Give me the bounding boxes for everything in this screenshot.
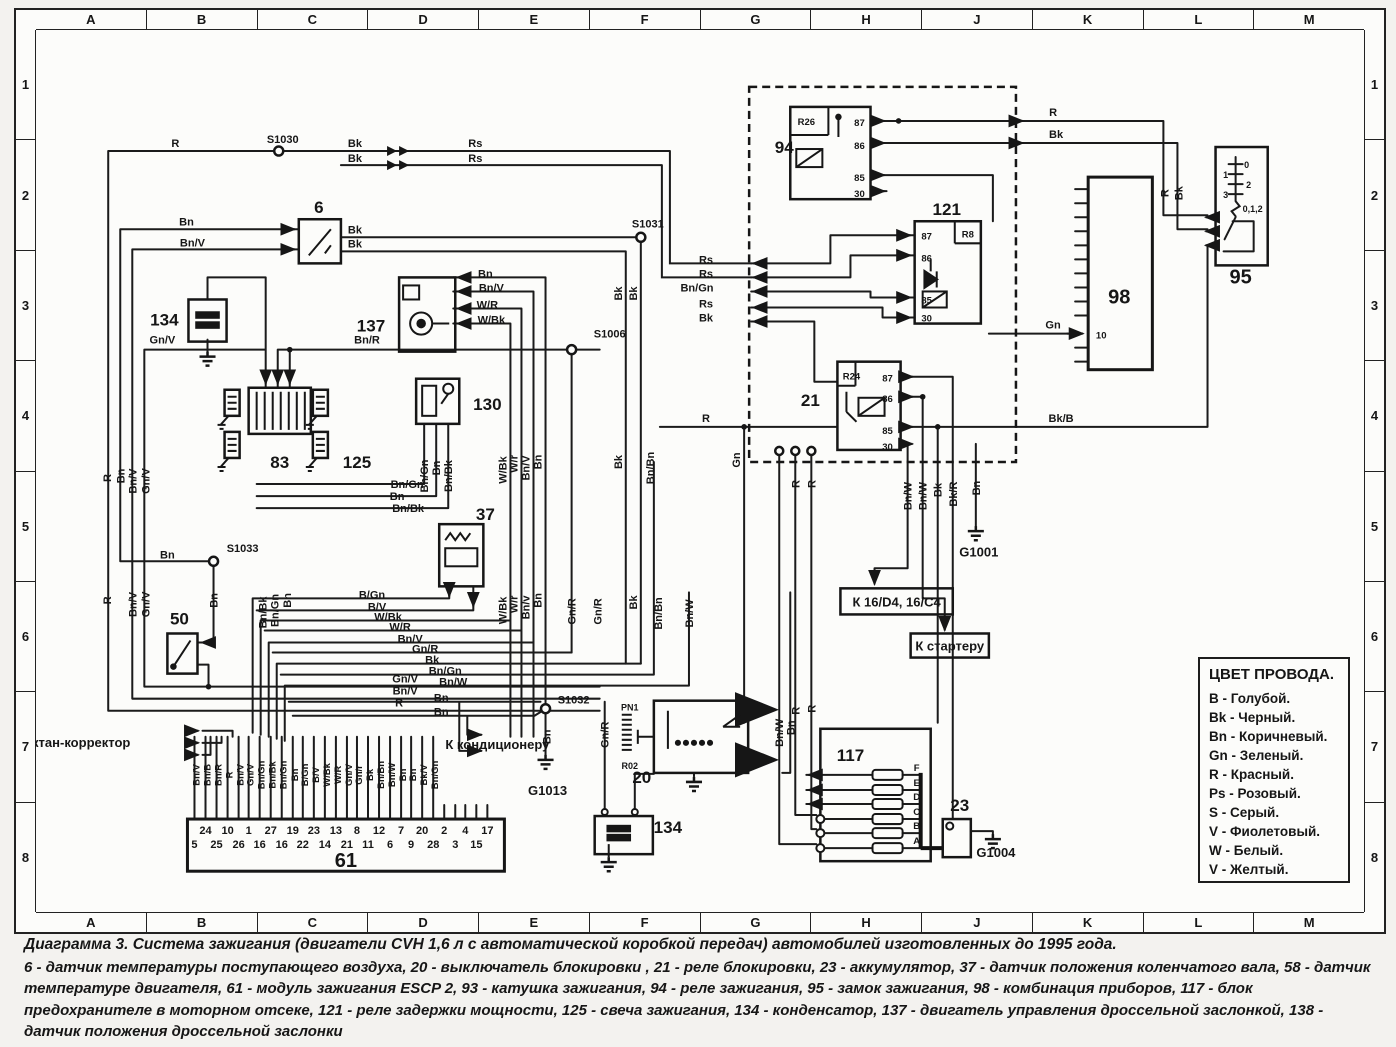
spark-plug-125 xyxy=(218,432,240,471)
wire-label: Bk xyxy=(613,454,625,469)
wire-label: 0,1,2 xyxy=(1243,204,1263,214)
grid-col-J: J xyxy=(921,10,1032,29)
ground-g1013 xyxy=(538,755,554,769)
wire-label: R xyxy=(102,596,114,604)
wire-label: Bn xyxy=(282,593,294,608)
spark-plug-125 xyxy=(306,390,328,429)
wire-label: 87 xyxy=(921,231,932,242)
wire-label: 25 xyxy=(210,839,222,851)
wire-label: R24 xyxy=(843,372,861,383)
wire-run-relaybox xyxy=(660,121,1216,844)
wire-label: D xyxy=(913,792,920,803)
wire-label: 13 xyxy=(330,825,342,837)
wire-label: Gn/V xyxy=(140,468,152,494)
wire-label: W/R xyxy=(477,300,498,312)
wire-label: 24 xyxy=(199,825,212,837)
wire-label: B/Gn xyxy=(359,589,386,601)
wire-label: Bn/W xyxy=(387,763,398,787)
wire-label: Bn xyxy=(434,693,449,705)
wire-label: 8 xyxy=(354,825,360,837)
wire-label: Bn xyxy=(115,468,127,483)
wire-label: Bn/Bk xyxy=(258,596,270,629)
legend-title: ЦВЕТ ПРОВОДА. xyxy=(1209,666,1339,683)
wire-label: R xyxy=(171,138,179,150)
wire-label: 17 xyxy=(481,825,493,837)
grid-numbers-left: 12345678 xyxy=(16,30,36,912)
grid-numbers-right: 12345678 xyxy=(1364,30,1384,912)
caption-title: Диаграмма 3. Система зажигания (двигател… xyxy=(24,936,1382,954)
to-air-conditioner-label: К кондиционеру xyxy=(445,737,550,752)
wire-label: W/Bk xyxy=(322,762,333,786)
wire-label: R xyxy=(790,480,802,488)
wire-label: 26 xyxy=(232,839,244,851)
wire-label: 16 xyxy=(276,839,288,851)
grid-col-C: C xyxy=(257,913,368,932)
wire-label: B/V xyxy=(311,766,322,783)
wire-label: Bn xyxy=(533,593,545,608)
wire-label: 85 xyxy=(882,426,893,437)
wire-label: 19 xyxy=(287,825,299,837)
engine-temp-sensor-50 xyxy=(167,633,197,673)
diagram-frame: ABCDEFGHJKLM ABCDEFGHJKLM 12345678 12345… xyxy=(14,8,1386,934)
component-130-label: 130 xyxy=(473,395,501,414)
legend-entry: S - Серый. xyxy=(1209,803,1339,822)
wire-label: 85 xyxy=(921,295,932,306)
wire-label: Bn/W xyxy=(684,599,696,628)
grid-col-E: E xyxy=(478,10,589,29)
legend-entry: V - Фиолетовый. xyxy=(1209,822,1339,841)
wire-label: 10 xyxy=(221,825,233,837)
ignition-coil-83 xyxy=(249,388,311,434)
wire-label: Bn xyxy=(434,707,449,719)
wire-label: Bk xyxy=(348,238,363,250)
wire-label: Bn xyxy=(390,491,405,503)
wire-label: Bn xyxy=(478,268,493,280)
wire-label: 3 xyxy=(452,839,458,851)
wire-label: Bn/V xyxy=(180,237,206,249)
wire-label: 86 xyxy=(854,141,865,152)
wire-label: 4 xyxy=(462,825,469,837)
wire-label: 3 xyxy=(1223,190,1228,200)
component-95-label: 95 xyxy=(1229,266,1251,288)
wire-label: Bn/V xyxy=(127,468,139,494)
wire-label: Bn xyxy=(431,460,443,475)
wire-label: Bk xyxy=(933,482,945,497)
wire-label: R xyxy=(225,771,236,778)
wiring-schematic: RS1030BkBkRsRs6BnBn/VBkBkS1031134137BnBn… xyxy=(36,30,1364,912)
grid-col-D: D xyxy=(367,10,478,29)
splice-s1031-label: S1031 xyxy=(632,218,664,230)
grid-row-6: 6 xyxy=(16,581,35,691)
wire-label: Rs xyxy=(699,299,713,311)
ground-g1001-label: G1001 xyxy=(959,544,998,559)
component-134b-label: 134 xyxy=(654,818,683,837)
wire-label: 28 xyxy=(427,839,439,851)
relay-121-label: 121 xyxy=(933,200,961,219)
component-125-label: 125 xyxy=(343,453,371,472)
wire-label: R26 xyxy=(798,117,815,128)
grid-row-1: 1 xyxy=(1365,30,1384,139)
wire-label: Bn/Bk xyxy=(268,760,279,788)
grid-row-7: 7 xyxy=(1365,691,1384,801)
wire-label: B xyxy=(913,821,920,832)
wire-label: W/r xyxy=(508,454,520,472)
wire-label: R xyxy=(395,698,403,710)
wire-label: Gn xyxy=(1045,320,1061,332)
wire-label: Bn xyxy=(408,768,419,781)
splice-s1033 xyxy=(209,557,218,566)
component-61-label: 61 xyxy=(335,850,357,872)
wire-label: Gn/V xyxy=(150,335,176,347)
page: { "grid": {"cols":["A","B","C","D","E","… xyxy=(0,0,1396,1047)
grid-row-2: 2 xyxy=(1365,139,1384,249)
grid-row-5: 5 xyxy=(16,471,35,581)
wire-label: Bn/Bn xyxy=(653,597,665,630)
wire-label: 7 xyxy=(398,825,404,837)
schematic-canvas: RS1030BkBkRsRs6BnBn/VBkBkS1031134137BnBn… xyxy=(36,30,1364,912)
grid-row-4: 4 xyxy=(1365,360,1384,470)
wire-label: 12 xyxy=(373,825,385,837)
grid-col-A: A xyxy=(36,913,146,932)
label-layer: RS1030BkBkRsRs6BnBn/VBkBkS1031134137BnBn… xyxy=(36,107,1263,872)
wire-label: Gn/R xyxy=(593,598,605,624)
grid-row-8: 8 xyxy=(16,802,35,912)
wire-label: Gn/V xyxy=(246,763,257,786)
wire-label: 86 xyxy=(921,253,932,264)
grid-row-3: 3 xyxy=(1365,250,1384,360)
grid-col-A: A xyxy=(36,10,146,29)
wire-label: 85 xyxy=(854,173,865,184)
grid-col-K: K xyxy=(1032,10,1143,29)
wire-label: F xyxy=(914,763,920,774)
grid-col-L: L xyxy=(1143,913,1254,932)
wire-label: 16 xyxy=(254,839,266,851)
grid-col-E: E xyxy=(478,913,589,932)
grid-letters-bottom: ABCDEFGHJKLM xyxy=(36,912,1364,932)
spark-plug-125 xyxy=(306,432,328,471)
wire-label: W/R xyxy=(333,766,344,785)
splice-s1006 xyxy=(567,345,576,354)
to-starter-box-label: К стартеру xyxy=(915,639,985,654)
lock-switch-20 xyxy=(622,701,748,777)
octane-corrector-label: Октан-корректор xyxy=(36,735,130,750)
wire-label: R xyxy=(790,707,802,715)
wire-label: PN1 xyxy=(621,703,639,713)
grid-col-F: F xyxy=(589,10,700,29)
legend-entry: V - Желтый. xyxy=(1209,860,1339,879)
wire-label: 21 xyxy=(341,839,353,851)
wires xyxy=(108,121,1253,848)
grid-col-C: C xyxy=(257,10,368,29)
grid-col-K: K xyxy=(1032,913,1143,932)
ground-134b xyxy=(601,857,617,871)
to-16d4-box-label: К 16/D4, 16/C4 xyxy=(852,594,941,609)
wire-label: 1 xyxy=(1223,170,1228,180)
wire-label: Bk xyxy=(699,313,714,325)
grid-col-G: G xyxy=(700,10,811,29)
grid-col-J: J xyxy=(921,913,1032,932)
wire-label: Bn/Gn xyxy=(279,760,290,789)
wire-label: 20 xyxy=(416,825,428,837)
wire-label: Bk/V xyxy=(419,764,430,786)
wire-label: 30 xyxy=(854,189,865,200)
splice-s1006-label: S1006 xyxy=(594,329,626,341)
wire-label: Bn/W xyxy=(918,481,930,510)
wire-label: Bn xyxy=(785,720,797,735)
wire-label: Bk xyxy=(1173,185,1185,200)
wire-label: Rs xyxy=(468,153,482,165)
splice-s1033-label: S1033 xyxy=(227,543,259,555)
air-temp-sensor-6 xyxy=(299,219,341,263)
wire-label: Gn/R xyxy=(567,598,579,624)
wire-label: 27 xyxy=(265,825,277,837)
wire-label: Bn/V xyxy=(127,591,139,617)
wire-label: Bk xyxy=(628,594,640,609)
wire-label: Bn xyxy=(179,216,194,228)
grid-col-M: M xyxy=(1253,10,1364,29)
wire-label: Bn xyxy=(209,593,221,608)
wire-label: Bk xyxy=(348,224,363,236)
ground-g1013-label: G1013 xyxy=(528,783,567,798)
wire-label: Bk xyxy=(365,768,376,781)
connector-chevrons xyxy=(387,146,409,170)
wire-label: Bn/V xyxy=(393,686,419,698)
wire-label: Gn/R xyxy=(600,722,612,748)
throttle-motor-137 xyxy=(399,277,455,351)
wire-label: Bn xyxy=(160,549,175,561)
components xyxy=(167,87,1267,871)
wire-label: 30 xyxy=(921,314,932,325)
wire-label: W/Bk xyxy=(478,315,506,327)
wire-label: Bk/B xyxy=(1049,413,1074,425)
grid-row-6: 6 xyxy=(1365,581,1384,691)
wire-label: R xyxy=(702,413,710,425)
wire-label: Rs xyxy=(468,138,482,150)
wire-label: 9 xyxy=(408,839,414,851)
grid-col-H: H xyxy=(810,10,921,29)
component-83-label: 83 xyxy=(270,453,289,472)
wire-label: Rs xyxy=(699,254,713,266)
wire-label: 1 xyxy=(246,825,252,837)
wire-label: Bn/Bk xyxy=(443,459,455,492)
splice-s1030 xyxy=(274,147,283,156)
caption-body: 6 - датчик температуры поступающего возд… xyxy=(24,957,1382,1042)
grid-col-B: B xyxy=(146,913,257,932)
wire-label: 6 xyxy=(387,839,393,851)
wire-run-center xyxy=(197,277,688,810)
legend-entry: Ps - Розовый. xyxy=(1209,784,1339,803)
condenser-134b xyxy=(595,809,653,857)
wire-label: Gn xyxy=(731,452,743,468)
wire-label: Bk xyxy=(628,286,640,301)
wire-label: R xyxy=(806,705,818,713)
wire-label: Bn/Bn xyxy=(645,452,657,485)
wire-label: 2 xyxy=(1246,180,1251,190)
wire-label: Bn/Gn xyxy=(257,760,268,789)
splice-s1032 xyxy=(541,704,550,713)
wire-label: Gn/V xyxy=(140,591,152,617)
wire-label: Bn xyxy=(533,454,545,469)
wire-label: C xyxy=(913,807,920,818)
wire-label: R xyxy=(1159,189,1171,197)
battery-23 xyxy=(943,819,971,857)
wire-label: E xyxy=(913,778,919,789)
grid-row-4: 4 xyxy=(16,360,35,470)
grid-row-5: 5 xyxy=(1365,471,1384,581)
grid-col-G: G xyxy=(700,913,811,932)
component-130 xyxy=(416,379,459,424)
component-37-label: 37 xyxy=(476,505,495,524)
legend-entry: Gn - Зеленый. xyxy=(1209,746,1339,765)
wire-label: W/r xyxy=(508,595,520,613)
wire-label: Gn/V xyxy=(392,674,418,686)
relay-94-label: 94 xyxy=(775,138,794,157)
wire-label: Bn/v xyxy=(520,595,532,620)
wire-label: 30 xyxy=(882,442,893,453)
ground-g1004-label: G1004 xyxy=(976,845,1016,860)
wire-label: 14 xyxy=(319,839,332,851)
splice-s1030-label: S1030 xyxy=(267,134,299,146)
wire-label: R xyxy=(806,480,818,488)
legend-entry: W - Белый. xyxy=(1209,841,1339,860)
grid-row-2: 2 xyxy=(16,139,35,249)
wire-label: Bk xyxy=(613,286,625,301)
grid-col-F: F xyxy=(589,913,700,932)
wire-label: 2 xyxy=(441,825,447,837)
wire-label: Bn xyxy=(971,480,983,495)
component-50-label: 50 xyxy=(170,609,189,628)
component-6-label: 6 xyxy=(314,198,323,217)
wire-label: Bk/R xyxy=(948,481,960,506)
wire-label: B/Gn xyxy=(300,763,311,786)
ground-134a xyxy=(199,352,215,366)
grid-col-B: B xyxy=(146,10,257,29)
wire-label: Bk xyxy=(1049,129,1064,141)
legend-entry: Bn - Коричневый. xyxy=(1209,727,1339,746)
legend-entry: Bk - Черный. xyxy=(1209,708,1339,727)
wire-label: Bk xyxy=(348,138,363,150)
wire-label: 22 xyxy=(297,839,309,851)
wire-label: Bn/B xyxy=(203,764,214,786)
wire-label: 23 xyxy=(308,825,320,837)
component-98-label: 98 xyxy=(1108,286,1130,308)
wire-98-teeth xyxy=(1067,189,1088,362)
wire-label: Bn/W xyxy=(439,677,468,689)
legend-entry: B - Голубой. xyxy=(1209,689,1339,708)
wire-label: Bn/R xyxy=(214,764,225,786)
wire-label: Bk xyxy=(348,153,363,165)
wire-label: 87 xyxy=(882,374,893,385)
condenser-134a xyxy=(188,299,226,341)
grid-row-1: 1 xyxy=(16,30,35,139)
wire-label: 15 xyxy=(470,839,482,851)
grid-row-7: 7 xyxy=(16,691,35,801)
wire-label: Bn/V xyxy=(520,455,532,481)
crank-sensor-37 xyxy=(439,524,483,586)
relay-21-label: 21 xyxy=(801,391,820,410)
legend-rows: B - Голубой.Bk - Черный.Bn - Коричневый.… xyxy=(1209,689,1339,879)
wire-label: Gn/r xyxy=(354,765,365,785)
module61-pin-stubs-short xyxy=(444,805,487,819)
wire-label: Bn/Gn xyxy=(430,760,441,789)
wire-label: R8 xyxy=(962,229,974,240)
wire-label: 11 xyxy=(362,839,374,851)
wire-label: R xyxy=(1049,107,1057,119)
grid-col-H: H xyxy=(810,913,921,932)
wire-label: Bn/R xyxy=(354,335,380,347)
grid-row-8: 8 xyxy=(1365,802,1384,912)
splice-s1031 xyxy=(636,233,645,242)
wire-label: W/R xyxy=(389,621,410,633)
ground-g1001 xyxy=(968,526,984,540)
wire-label: 86 xyxy=(882,394,893,405)
caption: Диаграмма 3. Система зажигания (двигател… xyxy=(24,936,1382,1042)
spark-plug-125 xyxy=(218,390,240,429)
wire-label: Bn/W xyxy=(903,481,915,510)
grid-letters-top: ABCDEFGHJKLM xyxy=(36,10,1364,30)
component-23-label: 23 xyxy=(950,796,969,815)
wire-label: 10 xyxy=(1096,331,1107,342)
wire-label: A xyxy=(913,836,920,847)
wire-label: 5 xyxy=(191,839,197,851)
wire-label: R02 xyxy=(622,761,639,771)
component-117-label: 117 xyxy=(837,746,865,765)
wire-label: Rs xyxy=(699,268,713,280)
component-137-label: 137 xyxy=(357,317,385,336)
wire-label: R xyxy=(102,474,114,482)
wire-label: Bn xyxy=(542,729,554,744)
wire-label: 87 xyxy=(854,118,865,129)
grid-row-3: 3 xyxy=(16,250,35,360)
wire-label: Bn/Bk xyxy=(392,503,425,515)
wire-label: Bn/V xyxy=(191,763,202,785)
grid-col-M: M xyxy=(1253,913,1364,932)
grid-col-L: L xyxy=(1143,10,1254,29)
splice-s1032-label: S1032 xyxy=(558,695,590,707)
grid-col-D: D xyxy=(367,913,478,932)
legend-entry: R - Красный. xyxy=(1209,765,1339,784)
wire-label: Bn/Gn xyxy=(270,594,282,627)
wire-label: Bn/Gn xyxy=(391,479,424,491)
wire-label: Bn/V xyxy=(479,282,505,294)
wire-label: Bn/Gn xyxy=(680,282,713,294)
component-134a-label: 134 xyxy=(150,311,179,330)
wire-label: Bn/Bn xyxy=(376,761,387,789)
wire-color-legend: ЦВЕТ ПРОВОДА. B - Голубой.Bk - Черный.Bn… xyxy=(1198,657,1350,883)
ground-20 xyxy=(686,777,702,791)
wire-label: 0 xyxy=(1244,160,1249,170)
